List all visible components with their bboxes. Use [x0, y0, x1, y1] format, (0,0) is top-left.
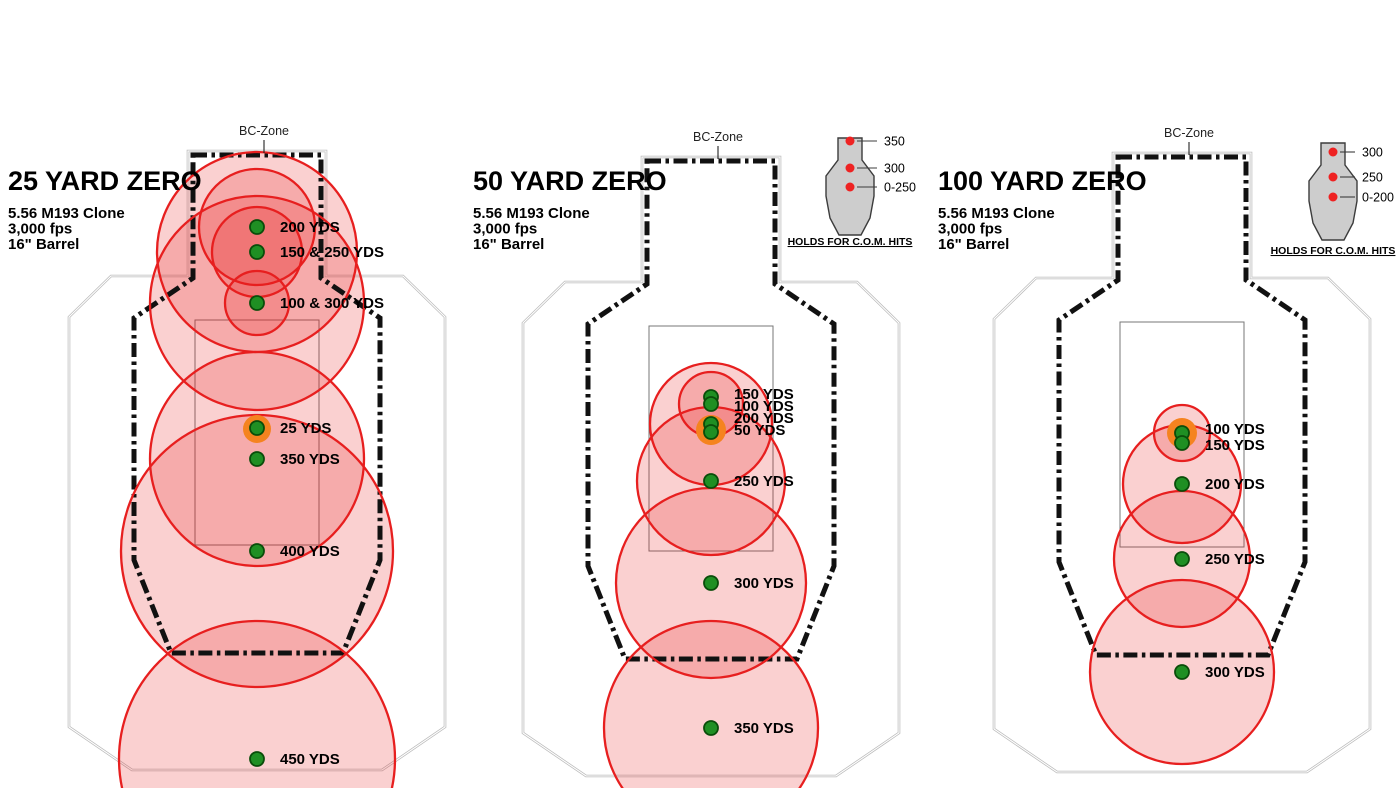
holds-diagram: 3002500-200HOLDS FOR C.O.M. HITS	[1271, 143, 1396, 257]
distance-label: 200 YDS	[1205, 476, 1265, 493]
hold-distance-label: 0-200	[1362, 191, 1394, 205]
holds-caption: HOLDS FOR C.O.M. HITS	[1271, 245, 1396, 257]
impact-dot	[1175, 552, 1189, 566]
hold-distance-label: 300	[1362, 146, 1383, 160]
distance-label: 350 YDS	[280, 451, 340, 468]
distance-label: 50 YDS	[734, 422, 785, 439]
hold-distance-label: 300	[884, 162, 905, 176]
panel-title: 25 YARD ZERO	[8, 166, 202, 196]
impact-dot	[250, 296, 264, 310]
distance-label: 250 YDS	[1205, 551, 1265, 568]
distance-label: 100 YDS	[1205, 421, 1265, 438]
distance-label: 350 YDS	[734, 720, 794, 737]
impact-dot	[1175, 665, 1189, 679]
impact-dot	[704, 425, 718, 439]
impact-dot	[250, 220, 264, 234]
panel-info-line: 3,000 fps	[938, 221, 1002, 238]
impact-dot	[250, 544, 264, 558]
panel-info-line: 3,000 fps	[473, 221, 537, 238]
distance-label: 150 & 250 YDS	[280, 244, 384, 261]
impact-dot	[1175, 477, 1189, 491]
impact-dot	[704, 721, 718, 735]
impact-dot	[250, 452, 264, 466]
bc-zone-label: BC-Zone	[239, 124, 289, 138]
impact-dot	[1175, 436, 1189, 450]
panel-info-line: 5.56 M193 Clone	[473, 205, 590, 222]
impact-dot	[250, 421, 264, 435]
impact-dot	[704, 397, 718, 411]
bc-zone-label: BC-Zone	[693, 130, 743, 144]
holds-diagram: 3503000-250HOLDS FOR C.O.M. HITS	[788, 135, 916, 249]
panel-25-yard-zero: 200 YDS150 & 250 YDS100 & 300 YDS25 YDS3…	[8, 124, 445, 788]
panel-info-line: 16" Barrel	[473, 236, 544, 253]
zero-comparison-diagram: 200 YDS150 & 250 YDS100 & 300 YDS25 YDS3…	[0, 0, 1400, 788]
impact-dot	[250, 245, 264, 259]
holds-caption: HOLDS FOR C.O.M. HITS	[788, 236, 913, 248]
impact-dot	[704, 474, 718, 488]
hold-point-dot	[846, 164, 855, 173]
distance-label: 100 & 300 YDS	[280, 295, 384, 312]
bc-zone-label: BC-Zone	[1164, 126, 1214, 140]
panel-title: 100 YARD ZERO	[938, 166, 1147, 196]
panel-info-line: 3,000 fps	[8, 221, 72, 238]
impact-dot	[250, 752, 264, 766]
hold-point-dot	[1329, 193, 1338, 202]
distance-label: 300 YDS	[1205, 664, 1265, 681]
holds-target-silhouette	[1309, 143, 1357, 240]
panel-info-line: 5.56 M193 Clone	[938, 205, 1055, 222]
hold-distance-label: 350	[884, 135, 905, 149]
hold-distance-label: 0-250	[884, 181, 916, 195]
panel-info-line: 5.56 M193 Clone	[8, 205, 125, 222]
panel-info-line: 16" Barrel	[938, 236, 1009, 253]
distance-label: 150 YDS	[1205, 437, 1265, 454]
hold-distance-label: 250	[1362, 171, 1383, 185]
hold-point-dot	[846, 137, 855, 146]
distance-label: 25 YDS	[280, 420, 331, 437]
distance-label: 200 YDS	[280, 219, 340, 236]
panel-title: 50 YARD ZERO	[473, 166, 667, 196]
hold-point-dot	[1329, 148, 1338, 157]
panel-info-line: 16" Barrel	[8, 236, 79, 253]
distance-label: 400 YDS	[280, 543, 340, 560]
distance-label: 300 YDS	[734, 575, 794, 592]
panel-50-yard-zero: 150 YDS100 YDS200 YDS50 YDS250 YDS300 YD…	[473, 130, 916, 788]
distance-label: 250 YDS	[734, 473, 794, 490]
hold-point-dot	[846, 183, 855, 192]
impact-dot	[704, 576, 718, 590]
hold-point-dot	[1329, 173, 1338, 182]
distance-label: 450 YDS	[280, 751, 340, 768]
ballistic-zero-comparison-infographic: 200 YDS150 & 250 YDS100 & 300 YDS25 YDS3…	[0, 0, 1400, 788]
shot-group-circle-fill	[604, 621, 818, 788]
panel-100-yard-zero: 100 YDS150 YDS200 YDS250 YDS300 YDSBC-Zo…	[938, 126, 1395, 772]
